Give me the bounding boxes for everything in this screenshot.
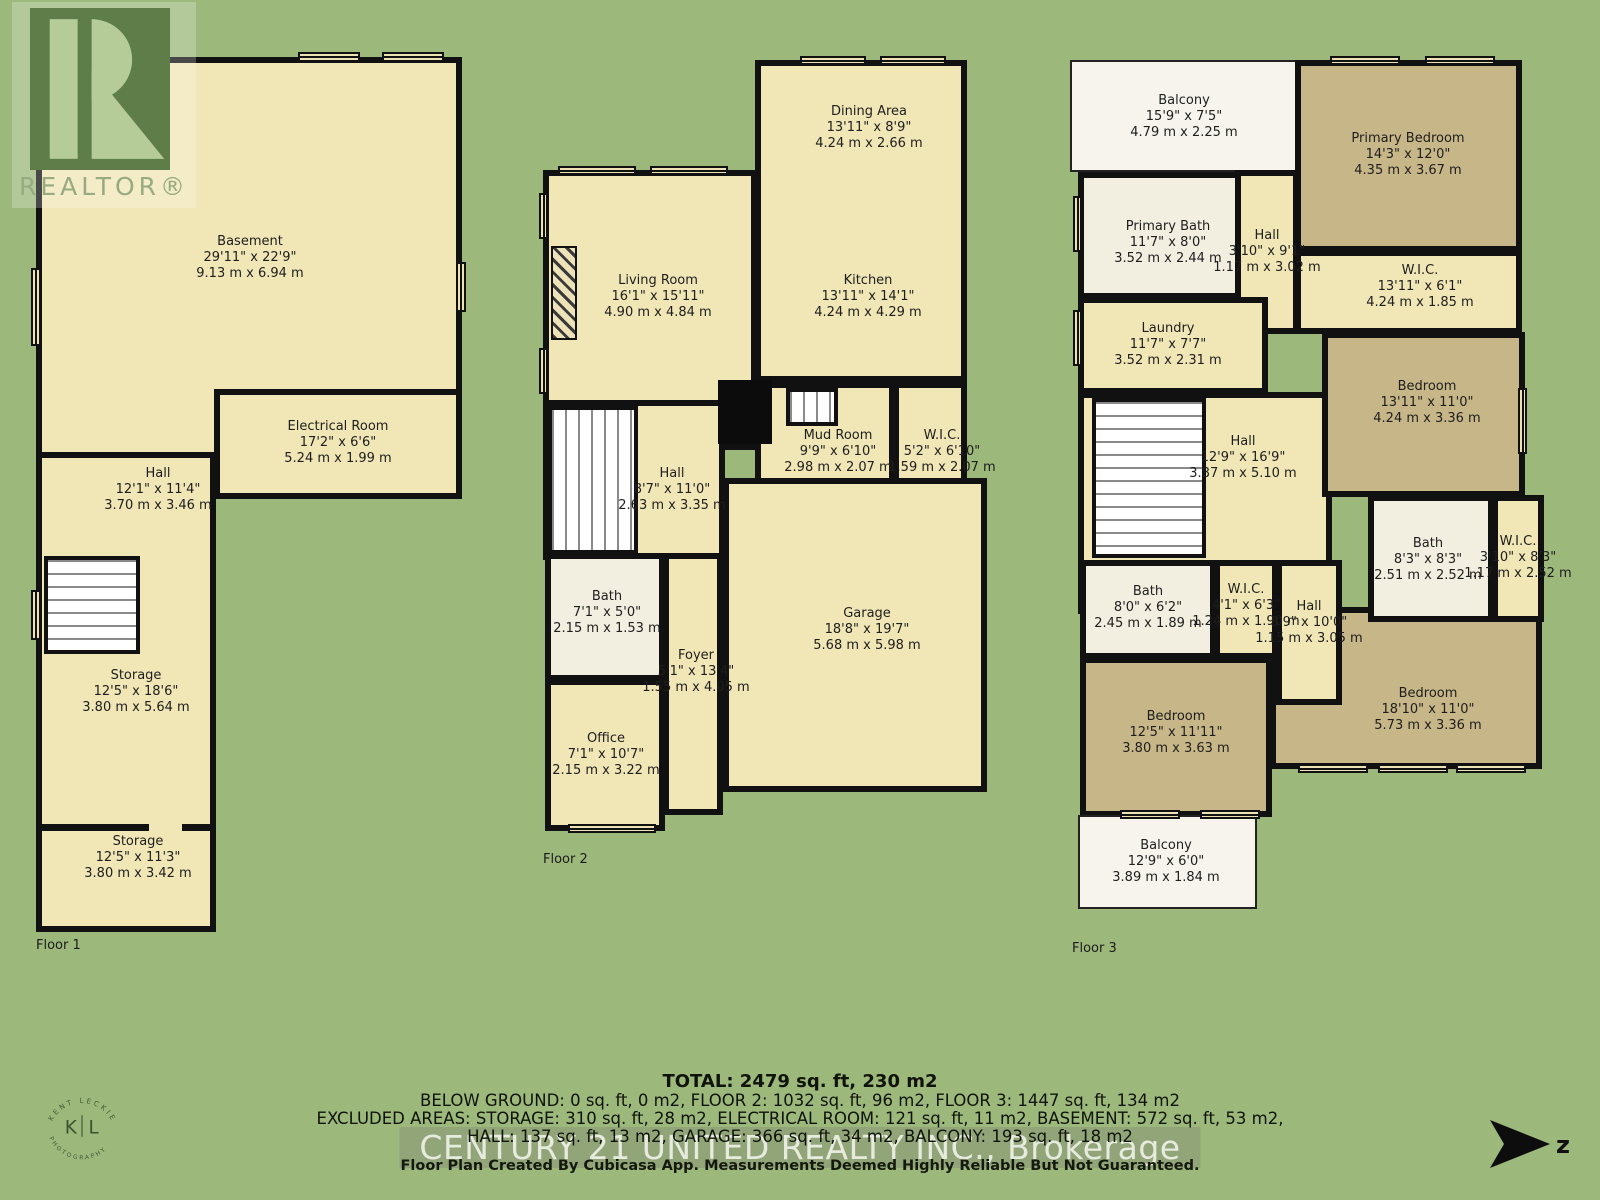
- window: [1378, 764, 1448, 773]
- floor1-label: Floor 1: [36, 938, 81, 953]
- room-label-balcony-top: Balcony15'9" x 7'5"4.79 m x 2.25 m: [1089, 93, 1279, 141]
- stairs-small-floor2: [786, 388, 838, 426]
- room-label-living: Living Room16'1" x 15'11"4.90 m x 4.84 m: [563, 273, 753, 321]
- room-label-balcony-bottom: Balcony12'9" x 6'0"3.89 m x 1.84 m: [1071, 838, 1261, 886]
- room-label-electrical: Electrical Room17'2" x 6'6"5.24 m x 1.99…: [243, 419, 433, 467]
- window: [1425, 56, 1495, 65]
- window: [31, 590, 41, 640]
- window: [1120, 810, 1180, 819]
- window: [1200, 810, 1260, 819]
- window: [298, 52, 360, 62]
- summary-total: TOTAL: 2479 sq. ft, 230 m2: [0, 1071, 1600, 1092]
- room-label-office: Office7'1" x 10'7"2.15 m x 3.22 m: [511, 731, 701, 779]
- window: [31, 268, 41, 346]
- room-label-wic-f2: W.I.C.5'2" x 6'10"1.59 m x 2.07 m: [847, 428, 1037, 476]
- room-label-bedroom-right: Bedroom13'11" x 11'0"4.24 m x 3.36 m: [1332, 379, 1522, 427]
- room-label-basement: Basement29'11" x 22'9"9.13 m x 6.94 m: [155, 234, 345, 282]
- floor2-label: Floor 2: [543, 852, 588, 867]
- summary-line3: EXCLUDED AREAS: STORAGE: 310 sq. ft, 28 …: [0, 1110, 1600, 1128]
- wall-storage-divider: [41, 824, 149, 831]
- window: [800, 56, 866, 65]
- room-label-bedroom-lower-right: Bedroom18'10" x 11'0"5.73 m x 3.36 m: [1333, 686, 1523, 734]
- floor3-label: Floor 3: [1072, 941, 1117, 956]
- area-summary: TOTAL: 2479 sq. ft, 230 m2 BELOW GROUND:…: [0, 1071, 1600, 1146]
- window: [1298, 764, 1368, 773]
- wall-storage-divider: [182, 824, 214, 831]
- window: [1330, 56, 1400, 65]
- room-label-bedroom-lower-left: Bedroom12'5" x 11'11"3.80 m x 3.63 m: [1081, 709, 1271, 757]
- room-label-wic-right: W.I.C.3'10" x 8'3"1.17 m x 2.52 m: [1423, 534, 1600, 582]
- room-label-storage2: Storage12'5" x 11'3"3.80 m x 3.42 m: [43, 834, 233, 882]
- window: [650, 166, 728, 175]
- disclaimer-text: Floor Plan Created By Cubicasa App. Meas…: [0, 1158, 1600, 1174]
- stairs-floor1: [44, 556, 140, 654]
- window: [539, 193, 548, 239]
- room-label-garage: Garage18'8" x 19'7"5.68 m x 5.98 m: [772, 606, 962, 654]
- floor-plan-canvas: Basement29'11" x 22'9"9.13 m x 6.94 m El…: [0, 0, 1600, 1200]
- room-label-hall-low-f3: Hall3'9" x 10'0"1.15 m x 3.05 m: [1214, 599, 1404, 647]
- realtor-logo-r-mark: [30, 8, 170, 170]
- window: [382, 52, 444, 62]
- realtor-wordmark: REALTOR®: [6, 172, 202, 201]
- realtor-logo: REALTOR®: [12, 2, 196, 208]
- window: [539, 348, 548, 394]
- room-label-storage1: Storage12'5" x 18'6"3.80 m x 5.64 m: [41, 668, 231, 716]
- summary-line2: BELOW GROUND: 0 sq. ft, 0 m2, FLOOR 2: 1…: [0, 1092, 1600, 1110]
- room-label-kitchen: Kitchen13'11" x 14'1"4.24 m x 4.29 m: [773, 273, 963, 321]
- window: [1456, 764, 1526, 773]
- summary-line4: HALL: 137 sq. ft, 13 m2, GARAGE: 366 sq.…: [0, 1128, 1600, 1146]
- realtor-r-icon: [30, 8, 170, 170]
- room-label-hall-f1: Hall12'1" x 11'4"3.70 m x 3.46 m: [63, 466, 253, 514]
- room-label-laundry: Laundry11'7" x 7'7"3.52 m x 2.31 m: [1073, 321, 1263, 369]
- room-label-hall-f2: Hall8'7" x 11'0"2.63 m x 3.35 m: [577, 466, 767, 514]
- room-label-bath-f2: Bath7'1" x 5'0"2.15 m x 1.53 m: [512, 589, 702, 637]
- room-label-wic-primary: W.I.C.13'11" x 6'1"4.24 m x 1.85 m: [1325, 263, 1515, 311]
- window: [880, 56, 946, 65]
- window: [456, 262, 466, 312]
- window: [558, 166, 636, 175]
- room-label-foyer: Foyer5'1" x 13'4"1.55 m x 4.05 m: [601, 648, 791, 696]
- window: [568, 824, 656, 833]
- room-label-primary-bedroom: Primary Bedroom14'3" x 12'0"4.35 m x 3.6…: [1313, 131, 1503, 179]
- room-label-hall-mid-f3: Hall12'9" x 16'9"3.87 m x 5.10 m: [1148, 434, 1338, 482]
- room-label-dining: Dining Area13'11" x 8'9"4.24 m x 2.66 m: [774, 104, 964, 152]
